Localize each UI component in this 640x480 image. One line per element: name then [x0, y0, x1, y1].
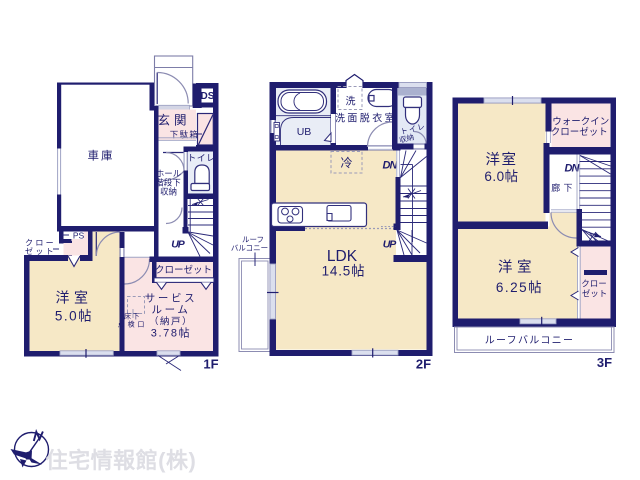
- svg-text:PS: PS: [73, 231, 85, 241]
- svg-text:洋室: 洋室: [486, 152, 518, 169]
- svg-text:ルーム: ルーム: [152, 304, 191, 316]
- svg-text:ウォークイン: ウォークイン: [552, 117, 609, 128]
- svg-text:6.25帖: 6.25帖: [496, 280, 543, 295]
- svg-text:DN: DN: [565, 163, 581, 175]
- svg-text:UP: UP: [171, 239, 186, 251]
- svg-text:冷: 冷: [340, 156, 352, 170]
- svg-text:住宅情報館(株): 住宅情報館(株): [46, 448, 197, 473]
- svg-text:DN: DN: [383, 160, 399, 172]
- svg-text:（納戸）: （納戸）: [149, 316, 193, 328]
- svg-text:3.78帖: 3.78帖: [151, 327, 191, 340]
- svg-text:廊下: 廊下: [551, 182, 575, 193]
- svg-text:6.0帖: 6.0帖: [484, 169, 518, 184]
- svg-text:DS: DS: [201, 91, 215, 102]
- svg-text:5.0帖: 5.0帖: [55, 309, 93, 324]
- svg-text:1F: 1F: [203, 357, 218, 372]
- svg-text:床下: 床下: [124, 312, 141, 321]
- svg-text:点検口: 点検口: [118, 320, 147, 329]
- svg-text:3F: 3F: [597, 355, 612, 370]
- svg-text:クローゼット: クローゼット: [155, 264, 212, 276]
- svg-text:バルコニー: バルコニー: [231, 244, 268, 253]
- svg-text:サービス: サービス: [145, 293, 197, 305]
- svg-text:ゼット: ゼット: [25, 246, 56, 256]
- svg-text:収納: 収納: [160, 187, 177, 197]
- svg-text:14.5帖: 14.5帖: [322, 264, 366, 279]
- svg-text:LDK: LDK: [327, 248, 358, 265]
- svg-text:車庫: 車庫: [88, 149, 115, 163]
- svg-text:洋室: 洋室: [498, 259, 536, 276]
- svg-text:UP: UP: [383, 239, 398, 251]
- svg-text:ルーフバルコニー: ルーフバルコニー: [485, 335, 575, 347]
- svg-text:玄関: 玄関: [157, 113, 190, 128]
- svg-text:2F: 2F: [416, 357, 431, 372]
- svg-text:クロー: クロー: [581, 279, 607, 289]
- svg-text:洗: 洗: [346, 96, 356, 108]
- svg-text:ゼット: ゼット: [582, 289, 608, 299]
- svg-text:UB: UB: [297, 126, 312, 138]
- svg-text:クローゼット: クローゼット: [551, 126, 608, 138]
- svg-text:洋室: 洋室: [56, 290, 93, 306]
- svg-text:トイレ: トイレ: [187, 153, 216, 163]
